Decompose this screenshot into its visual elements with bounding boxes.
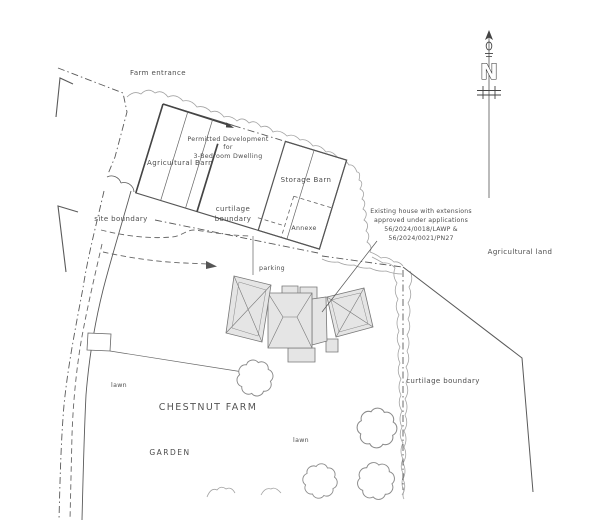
tree: [351, 456, 401, 506]
garden-fence-line: [110, 351, 243, 372]
curtilage-boundary-label-word1: curtilage: [216, 205, 250, 213]
parking-label: parking: [259, 265, 285, 272]
farm-entrance-label: Farm entrance: [130, 69, 186, 77]
existing-house: [226, 241, 377, 362]
offsite-building-corner-mid: [58, 206, 78, 272]
site-plan-canvas: N Farm entrance Permitted Development fo…: [0, 0, 612, 525]
annexe-label: Annexe: [291, 225, 316, 232]
tree: [234, 357, 275, 398]
hedge-right-west-edge: [372, 257, 404, 499]
house-middle-wing: [268, 293, 312, 348]
tree: [297, 458, 342, 503]
tree: [353, 404, 402, 453]
north-arrow: N: [477, 30, 501, 198]
curtilage-boundary-label-word2: boundary: [215, 215, 252, 223]
trees: [207, 357, 401, 505]
offsite-building-corner-top: [56, 78, 73, 117]
shrub: [207, 487, 235, 497]
permitted-development-label-line2: for: [223, 144, 233, 151]
curtilage-boundary-hedge-top: [322, 256, 402, 267]
outbuilding: [87, 333, 111, 351]
storage-barn-label: Storage Barn: [281, 176, 332, 184]
house-link-block: [312, 297, 327, 345]
house-small-extension: [326, 339, 338, 352]
drive-branch-lower-dashed: [103, 252, 207, 264]
curtilage-boundary-right-label: curtilage boundary: [406, 377, 480, 385]
existing-house-note-line4: 56/2024/0021/PN27: [388, 235, 453, 242]
garden-label: GARDEN: [149, 448, 190, 457]
site-boundary-label: site boundary: [94, 215, 147, 223]
existing-house-note-line2: approved under applications: [374, 217, 468, 224]
drive-direction-arrow: [206, 261, 217, 269]
existing-house-note-line3: 56/2024/0018/LAWP &: [384, 226, 458, 233]
north-letter: N: [480, 60, 498, 84]
existing-house-note-line1: Existing house with extensions: [370, 208, 472, 215]
permitted-development-label-line1: Permitted Development: [187, 136, 269, 143]
drive-east-edge: [82, 191, 131, 520]
drive-centerline-dashed: [70, 244, 102, 520]
agricultural-barn-label: Agricultural Barn: [147, 159, 213, 167]
entrance-gate-arcs: [107, 176, 134, 192]
lawn-label-left: lawn: [111, 382, 127, 389]
lawn-label-right: lawn: [293, 437, 309, 444]
site-boundary-line: [58, 68, 127, 520]
driveway: [70, 191, 253, 520]
site-plan-drawing: N Farm entrance Permitted Development fo…: [0, 0, 612, 525]
agricultural-land-label: Agricultural land: [488, 248, 553, 256]
shrub: [261, 488, 281, 495]
drive-branch-upper-dashed: [101, 230, 250, 238]
chestnut-farm-label: CHESTNUT FARM: [159, 402, 258, 413]
house-rear-extension: [288, 348, 315, 362]
